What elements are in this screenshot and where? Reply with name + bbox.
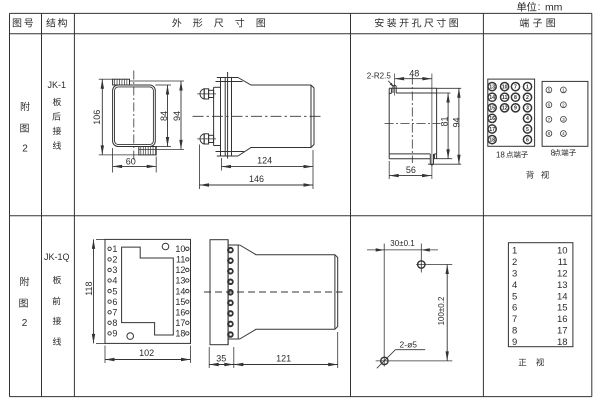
svg-text:13: 13: [175, 276, 185, 286]
svg-text:1: 1: [526, 84, 529, 90]
svg-text:4: 4: [526, 116, 529, 122]
svg-text:2-R2.5: 2-R2.5: [367, 71, 392, 80]
svg-text:14: 14: [557, 291, 568, 302]
svg-text:3: 3: [512, 268, 517, 279]
svg-text:106: 106: [92, 110, 102, 125]
svg-text:146: 146: [249, 174, 264, 184]
svg-text:13: 13: [489, 84, 495, 90]
svg-text:18: 18: [496, 150, 505, 159]
svg-text:35: 35: [216, 354, 226, 364]
svg-text:5: 5: [548, 88, 551, 93]
svg-text:2: 2: [112, 255, 117, 265]
svg-text:6: 6: [112, 297, 117, 307]
svg-text:17: 17: [489, 127, 495, 133]
svg-text:2: 2: [526, 95, 529, 101]
svg-text:15: 15: [175, 297, 185, 307]
svg-text:8: 8: [514, 95, 517, 101]
svg-text:14: 14: [489, 95, 495, 101]
svg-text:2: 2: [22, 318, 28, 329]
svg-text:81: 81: [440, 116, 450, 126]
svg-text:18: 18: [175, 329, 185, 339]
svg-text:12: 12: [557, 268, 568, 279]
svg-text:2: 2: [562, 102, 565, 107]
svg-text:16: 16: [175, 307, 185, 317]
svg-text:3: 3: [526, 106, 529, 112]
svg-text::: :: [538, 2, 541, 13]
svg-text:84: 84: [159, 111, 169, 121]
svg-text:JK-1Q: JK-1Q: [44, 252, 70, 262]
svg-text:7: 7: [512, 314, 517, 325]
svg-text:7: 7: [514, 84, 517, 90]
svg-text:8: 8: [512, 326, 517, 337]
svg-text:11: 11: [502, 95, 508, 101]
svg-text:1: 1: [562, 88, 565, 93]
svg-text:9: 9: [514, 106, 517, 112]
svg-text:102: 102: [139, 348, 154, 358]
svg-text:3: 3: [562, 117, 565, 122]
svg-text:60: 60: [126, 157, 136, 167]
svg-text:10: 10: [175, 244, 185, 254]
svg-text:1: 1: [112, 244, 117, 254]
svg-text:14: 14: [175, 286, 185, 296]
svg-text:17: 17: [175, 318, 185, 328]
svg-text:11: 11: [176, 255, 185, 265]
svg-text:JK-1: JK-1: [47, 80, 66, 90]
svg-text:118: 118: [84, 281, 94, 295]
svg-text:12: 12: [175, 265, 185, 275]
svg-text:15: 15: [557, 303, 568, 314]
svg-text:12: 12: [502, 106, 508, 112]
svg-text:18: 18: [489, 137, 495, 143]
svg-text:16: 16: [489, 116, 495, 122]
svg-text:7: 7: [112, 307, 117, 317]
svg-text:9: 9: [512, 337, 517, 348]
svg-text:4: 4: [512, 280, 517, 291]
svg-text:4: 4: [562, 131, 565, 136]
svg-text:13: 13: [557, 280, 568, 291]
svg-text:18: 18: [557, 337, 568, 348]
svg-text:mm: mm: [545, 2, 563, 14]
svg-text:15: 15: [489, 106, 495, 112]
svg-text:6: 6: [526, 137, 529, 143]
svg-text:6: 6: [512, 303, 517, 314]
svg-text:6: 6: [548, 102, 551, 107]
svg-text:17: 17: [557, 326, 568, 337]
svg-text:124: 124: [257, 156, 272, 166]
svg-text:10: 10: [557, 246, 568, 257]
svg-text:121: 121: [276, 354, 291, 364]
svg-text:7: 7: [548, 117, 551, 122]
svg-text:2-ø5: 2-ø5: [400, 340, 418, 350]
svg-text:1: 1: [512, 246, 517, 257]
svg-text:100±0.2: 100±0.2: [437, 296, 446, 325]
svg-text:2: 2: [512, 257, 517, 268]
svg-text:5: 5: [512, 291, 517, 302]
svg-text:5: 5: [112, 286, 117, 296]
svg-text:3: 3: [112, 265, 117, 275]
svg-text:8: 8: [112, 318, 117, 328]
svg-text:30±0.1: 30±0.1: [390, 239, 415, 248]
svg-text:10: 10: [502, 84, 508, 90]
svg-text:5: 5: [526, 127, 529, 133]
svg-text:48: 48: [409, 68, 419, 78]
svg-text:94: 94: [452, 117, 462, 127]
svg-text:8: 8: [548, 131, 551, 136]
svg-text:11: 11: [558, 257, 568, 268]
svg-text:9: 9: [112, 329, 117, 339]
svg-text:94: 94: [172, 111, 182, 121]
svg-text:4: 4: [112, 276, 117, 286]
svg-text:16: 16: [557, 314, 568, 325]
svg-text:2: 2: [22, 144, 28, 155]
svg-text:56: 56: [406, 165, 416, 175]
